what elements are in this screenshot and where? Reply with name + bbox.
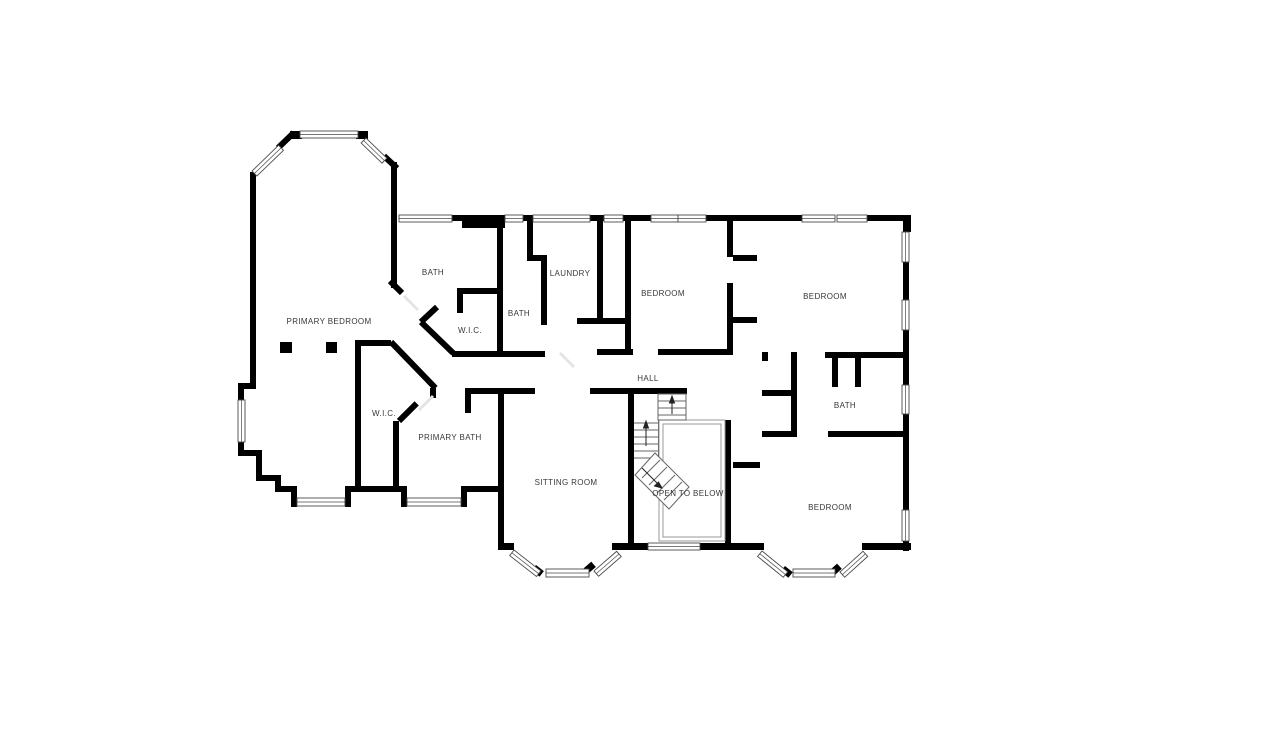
window xyxy=(252,145,283,176)
floorplan-page: PRIMARY BEDROOM BATH W.I.C. BATH LAUNDRY… xyxy=(0,0,1280,730)
window xyxy=(793,569,835,577)
window xyxy=(902,385,909,414)
window xyxy=(604,215,623,222)
room-label-laundry: LAUNDRY xyxy=(550,269,591,278)
window xyxy=(533,215,590,222)
room-label-wic-upper: W.I.C. xyxy=(458,326,482,335)
window xyxy=(297,498,345,506)
window xyxy=(902,232,909,262)
window xyxy=(300,131,358,138)
room-label-hall: HALL xyxy=(637,374,659,383)
window xyxy=(651,215,678,222)
window xyxy=(546,569,589,577)
window xyxy=(361,138,387,163)
window xyxy=(407,498,461,506)
room-label-bedroom-top-center: BEDROOM xyxy=(641,289,685,298)
window xyxy=(902,510,909,541)
room-label-primary-bath: PRIMARY BATH xyxy=(418,433,481,442)
room-label-bath-right: BATH xyxy=(834,401,856,410)
window xyxy=(758,551,788,577)
window xyxy=(399,215,452,222)
window xyxy=(678,215,706,222)
window xyxy=(594,551,621,576)
stair-winder-flight xyxy=(635,453,689,509)
room-label-open-to-below: OPEN TO BELOW xyxy=(652,489,723,498)
window xyxy=(648,543,700,550)
window xyxy=(837,215,867,222)
room-label-bath-center: BATH xyxy=(508,309,530,318)
window xyxy=(902,300,909,330)
room-label-wic-left: W.I.C. xyxy=(372,409,396,418)
room-label-primary-bedroom: PRIMARY BEDROOM xyxy=(287,317,372,326)
window xyxy=(840,551,868,577)
window xyxy=(510,550,541,576)
room-label-bedroom-bottom-right: BEDROOM xyxy=(808,503,852,512)
window xyxy=(238,400,245,442)
floorplan-canvas: PRIMARY BEDROOM BATH W.I.C. BATH LAUNDRY… xyxy=(0,0,1280,730)
room-label-bedroom-top-right: BEDROOM xyxy=(803,292,847,301)
window xyxy=(802,215,835,222)
room-label-sitting-room: SITTING ROOM xyxy=(535,478,598,487)
window xyxy=(505,215,523,222)
room-label-bath-top: BATH xyxy=(422,268,444,277)
